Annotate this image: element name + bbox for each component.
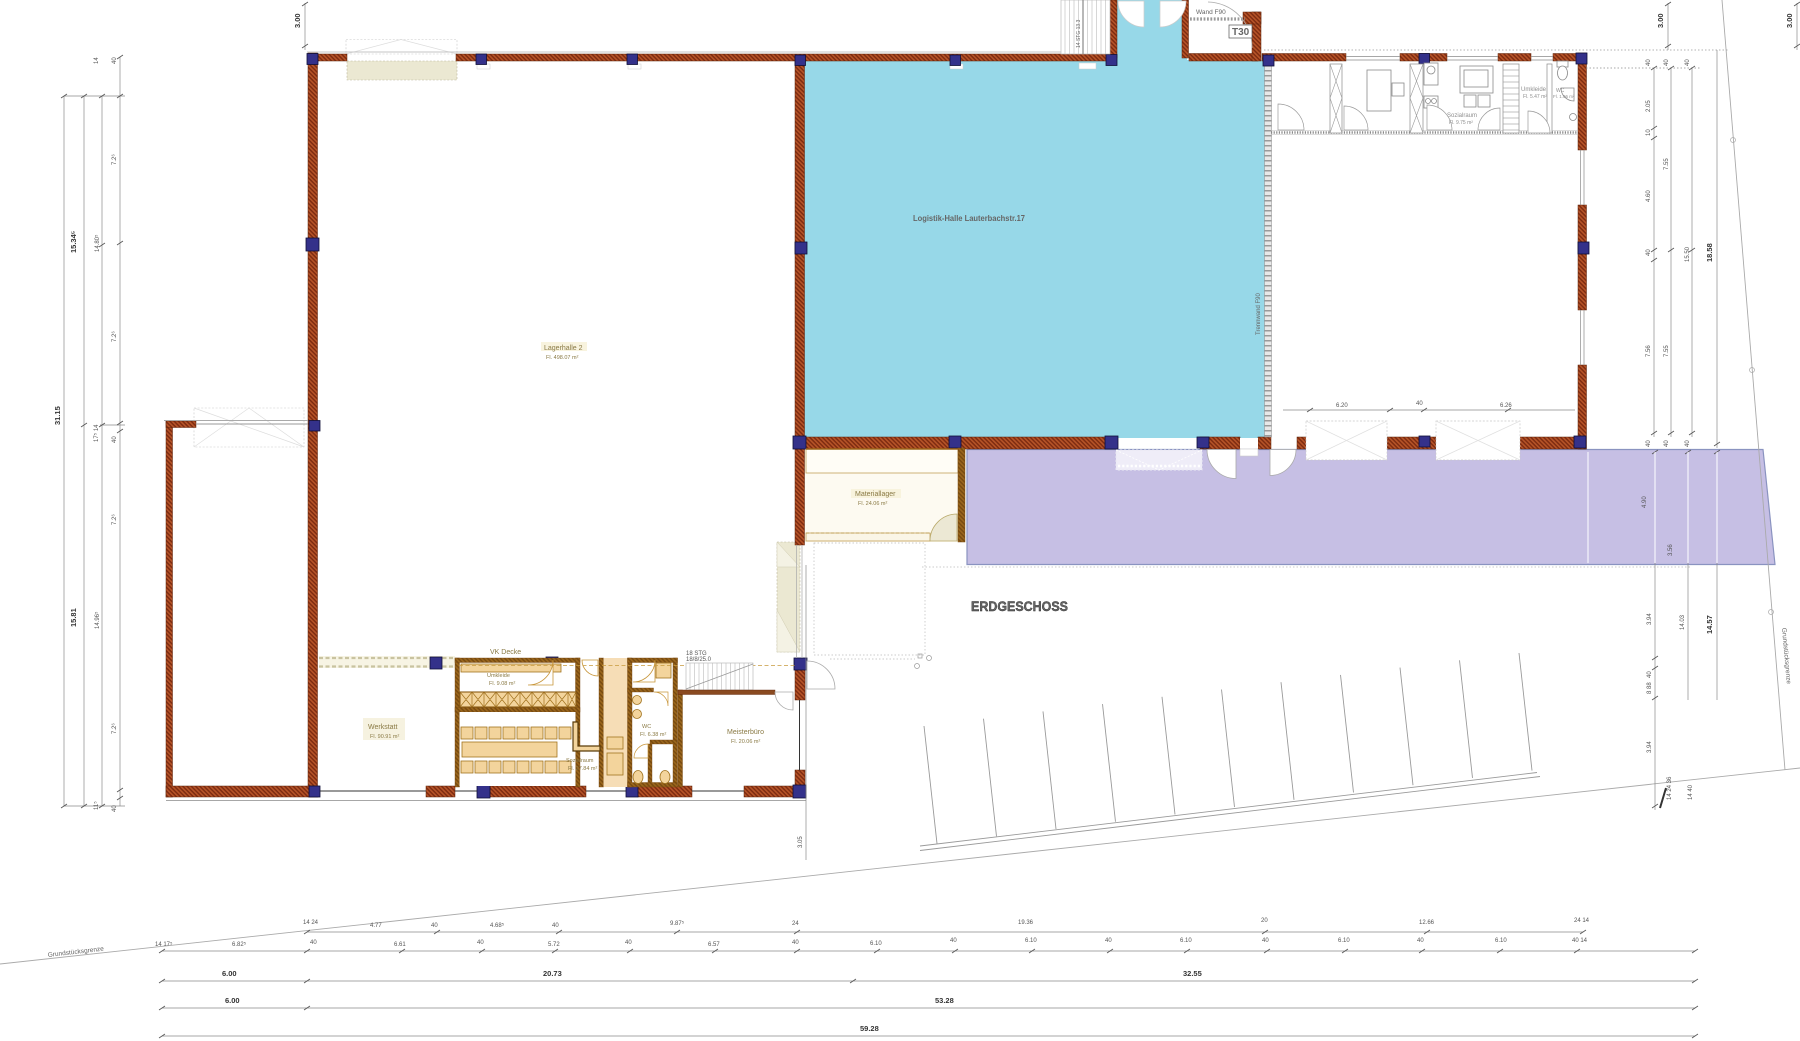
svg-text:3.00: 3.00 bbox=[293, 13, 302, 28]
svg-text:8 88: 8 88 bbox=[1647, 682, 1653, 694]
svg-text:2.05: 2.05 bbox=[1646, 100, 1652, 112]
svg-text:7.2⁶: 7.2⁶ bbox=[111, 154, 118, 165]
svg-text:40: 40 bbox=[1646, 440, 1652, 447]
svg-text:6.10: 6.10 bbox=[1025, 938, 1037, 944]
svg-text:14.96⁵: 14.96⁵ bbox=[94, 611, 101, 629]
svg-text:7.2⁶: 7.2⁶ bbox=[111, 723, 118, 734]
svg-text:ERDGESCHOSS: ERDGESCHOSS bbox=[971, 599, 1068, 614]
svg-text:4.77: 4.77 bbox=[370, 923, 382, 929]
svg-text:40 14: 40 14 bbox=[1572, 938, 1588, 944]
svg-text:40: 40 bbox=[112, 805, 118, 812]
svg-text:17⁵ 14: 17⁵ 14 bbox=[93, 424, 100, 442]
svg-text:20.73: 20.73 bbox=[543, 969, 562, 978]
svg-text:Umkleide: Umkleide bbox=[1521, 87, 1547, 93]
svg-text:Werkstatt: Werkstatt bbox=[368, 724, 397, 731]
svg-text:24 14: 24 14 bbox=[1574, 918, 1590, 924]
svg-text:Umkleide: Umkleide bbox=[487, 673, 510, 679]
svg-text:6.20: 6.20 bbox=[1336, 403, 1348, 409]
svg-text:Fl. 9.08 m²: Fl. 9.08 m² bbox=[489, 681, 515, 687]
svg-text:40: 40 bbox=[625, 940, 632, 946]
svg-text:40: 40 bbox=[1685, 440, 1691, 447]
svg-text:14 40: 14 40 bbox=[1688, 784, 1694, 800]
svg-text:14.80⁵: 14.80⁵ bbox=[94, 234, 101, 252]
svg-text:6.10: 6.10 bbox=[1338, 938, 1350, 944]
svg-text:Sozialraum: Sozialraum bbox=[566, 758, 594, 764]
svg-text:40: 40 bbox=[477, 940, 484, 946]
svg-text:19.36: 19.36 bbox=[1018, 920, 1034, 926]
svg-text:3.00: 3.00 bbox=[1785, 13, 1794, 28]
svg-text:3.05: 3.05 bbox=[798, 836, 804, 848]
svg-text:40: 40 bbox=[1685, 59, 1691, 66]
svg-text:40: 40 bbox=[1664, 59, 1670, 66]
svg-text:4.90: 4.90 bbox=[1642, 496, 1648, 508]
svg-text:32.55: 32.55 bbox=[1183, 969, 1202, 978]
svg-text:40: 40 bbox=[1105, 938, 1112, 944]
svg-text:7.2⁶: 7.2⁶ bbox=[111, 331, 118, 342]
svg-text:6.10: 6.10 bbox=[870, 941, 882, 947]
svg-text:4.60: 4.60 bbox=[1646, 190, 1652, 202]
svg-text:14.03: 14.03 bbox=[1680, 614, 1686, 630]
svg-text:Fl. 498.07 m²: Fl. 498.07 m² bbox=[546, 355, 579, 361]
svg-text:Fl. 27.84 m²: Fl. 27.84 m² bbox=[568, 766, 598, 772]
svg-text:40: 40 bbox=[792, 940, 799, 946]
svg-text:40: 40 bbox=[1646, 59, 1652, 66]
svg-text:14 24 36: 14 24 36 bbox=[1667, 776, 1673, 800]
svg-text:Materiallager: Materiallager bbox=[855, 491, 896, 498]
svg-text:40: 40 bbox=[112, 436, 118, 443]
svg-text:40: 40 bbox=[950, 938, 957, 944]
svg-text:Fl. 90.91 m²: Fl. 90.91 m² bbox=[370, 734, 400, 740]
svg-text:T30: T30 bbox=[1232, 27, 1250, 38]
svg-text:9.87⁵: 9.87⁵ bbox=[670, 920, 685, 927]
svg-text:6.00: 6.00 bbox=[225, 996, 240, 1005]
svg-text:7.56: 7.56 bbox=[1646, 345, 1652, 357]
svg-text:15.50: 15.50 bbox=[1685, 246, 1691, 262]
svg-text:31.15: 31.15 bbox=[53, 406, 62, 425]
svg-text:40: 40 bbox=[1646, 249, 1652, 256]
svg-text:12.66: 12.66 bbox=[1419, 920, 1435, 926]
svg-text:6.26: 6.26 bbox=[1500, 403, 1512, 409]
svg-text:VK Decke: VK Decke bbox=[490, 649, 521, 656]
svg-text:Trennwand F90: Trennwand F90 bbox=[1256, 293, 1262, 335]
svg-text:40: 40 bbox=[1417, 938, 1424, 944]
svg-text:3.56: 3.56 bbox=[1668, 544, 1674, 556]
svg-text:6.57: 6.57 bbox=[708, 942, 720, 948]
svg-text:Fl. 6.38 m²: Fl. 6.38 m² bbox=[640, 732, 666, 738]
svg-text:Fl. 1.96 m²: Fl. 1.96 m² bbox=[1553, 94, 1575, 99]
svg-text:Fl. 5.47 m²: Fl. 5.47 m² bbox=[1523, 94, 1547, 100]
svg-text:40: 40 bbox=[310, 940, 317, 946]
svg-text:40: 40 bbox=[112, 57, 118, 64]
svg-text:40: 40 bbox=[552, 923, 559, 929]
svg-text:14: 14 bbox=[94, 57, 100, 64]
svg-text:14 17⁵: 14 17⁵ bbox=[155, 941, 173, 948]
svg-text:15.34⁵: 15.34⁵ bbox=[69, 230, 78, 253]
svg-text:24: 24 bbox=[792, 921, 799, 927]
svg-text:7.2⁶: 7.2⁶ bbox=[111, 514, 118, 525]
svg-text:40: 40 bbox=[1647, 671, 1653, 678]
svg-text:15.81: 15.81 bbox=[69, 608, 78, 627]
svg-text:59.28: 59.28 bbox=[860, 1024, 879, 1033]
svg-text:7.55: 7.55 bbox=[1664, 345, 1670, 357]
svg-text:Fl. 20.06 m²: Fl. 20.06 m² bbox=[731, 739, 761, 745]
svg-text:6.61: 6.61 bbox=[394, 942, 406, 948]
svg-text:6.82⁵: 6.82⁵ bbox=[232, 941, 247, 948]
svg-text:53.28: 53.28 bbox=[935, 996, 954, 1005]
svg-text:Fl. 9.75 m²: Fl. 9.75 m² bbox=[1449, 120, 1473, 126]
svg-text:40: 40 bbox=[1416, 401, 1423, 407]
svg-text:3.94: 3.94 bbox=[1647, 741, 1653, 753]
svg-text:Sozialraum: Sozialraum bbox=[1447, 113, 1477, 119]
svg-text:40: 40 bbox=[1262, 938, 1269, 944]
svg-text:18/8/25.0: 18/8/25.0 bbox=[686, 657, 712, 663]
svg-text:14 STG 13.3: 14 STG 13.3 bbox=[1076, 19, 1082, 48]
svg-text:40: 40 bbox=[1664, 440, 1670, 447]
svg-text:WC: WC bbox=[642, 724, 651, 730]
svg-text:7.55: 7.55 bbox=[1664, 158, 1670, 170]
svg-text:14 24: 14 24 bbox=[303, 920, 319, 926]
svg-text:20: 20 bbox=[1261, 918, 1268, 924]
svg-text:11⁵: 11⁵ bbox=[93, 801, 100, 810]
svg-text:Fl. 24.06 m²: Fl. 24.06 m² bbox=[858, 501, 888, 507]
svg-text:6.00: 6.00 bbox=[222, 969, 237, 978]
svg-text:6.10: 6.10 bbox=[1495, 938, 1507, 944]
svg-text:4.68⁵: 4.68⁵ bbox=[490, 922, 505, 929]
svg-text:6.10: 6.10 bbox=[1180, 938, 1192, 944]
svg-text:18.58: 18.58 bbox=[1705, 243, 1714, 262]
svg-text:3.00: 3.00 bbox=[1656, 13, 1665, 28]
svg-text:Lagerhalle 2: Lagerhalle 2 bbox=[544, 345, 583, 352]
svg-text:40: 40 bbox=[431, 923, 438, 929]
svg-text:Wand F90: Wand F90 bbox=[1196, 9, 1226, 16]
svg-text:5.72: 5.72 bbox=[548, 942, 560, 948]
svg-text:10: 10 bbox=[1646, 129, 1652, 136]
svg-text:14.57: 14.57 bbox=[1705, 615, 1714, 634]
svg-text:Logistik-Halle Lauterbachstr.1: Logistik-Halle Lauterbachstr.17 bbox=[913, 213, 1025, 223]
svg-text:Meisterbüro: Meisterbüro bbox=[727, 729, 764, 736]
svg-text:3.94: 3.94 bbox=[1647, 613, 1653, 625]
